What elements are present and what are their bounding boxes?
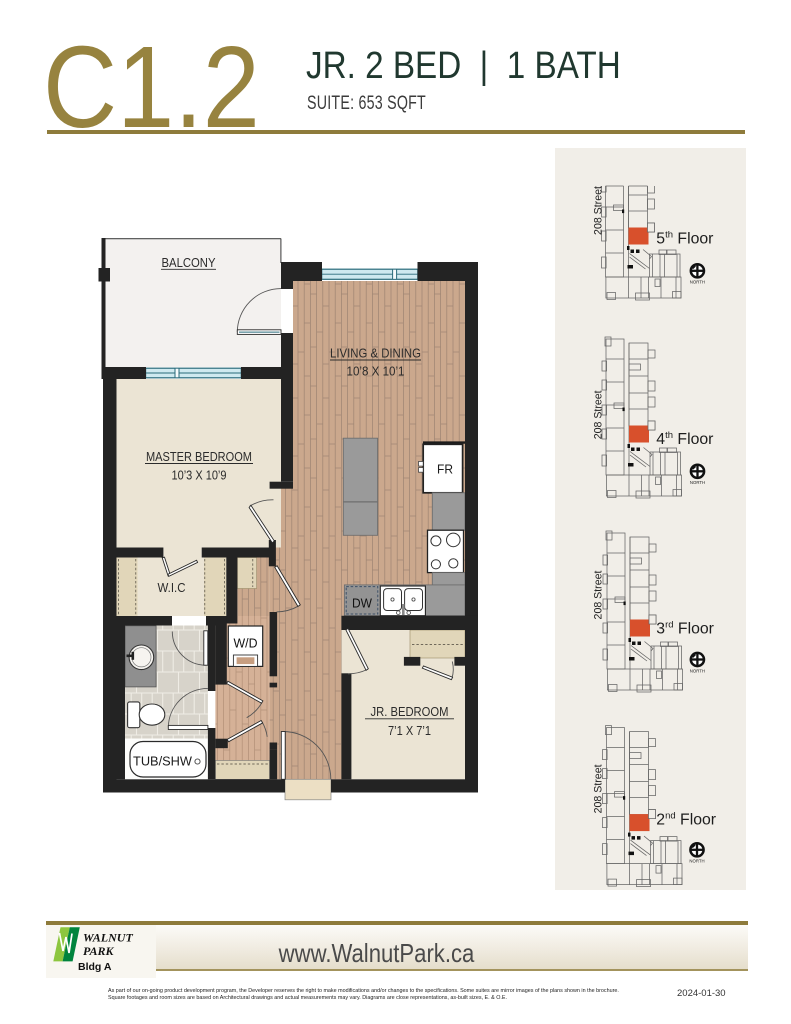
svg-text:208 Street: 208 Street bbox=[593, 764, 605, 813]
svg-text:DW: DW bbox=[352, 596, 373, 611]
svg-text:FR: FR bbox=[437, 463, 453, 477]
svg-text:10’3 X 10’9: 10’3 X 10’9 bbox=[172, 468, 227, 483]
svg-text:5th Floor: 5th Floor bbox=[656, 229, 713, 247]
svg-text:TUB/SHW: TUB/SHW bbox=[133, 754, 193, 769]
svg-text:208 Street: 208 Street bbox=[593, 390, 605, 439]
svg-text:7’1 X 7’1: 7’1 X 7’1 bbox=[388, 723, 431, 738]
svg-text:208 Street: 208 Street bbox=[593, 571, 605, 620]
svg-text:WALNUT: WALNUT bbox=[83, 930, 133, 944]
svg-text:W/D: W/D bbox=[234, 637, 258, 651]
svg-text:BALCONY: BALCONY bbox=[162, 256, 217, 270]
svg-text:2nd Floor: 2nd Floor bbox=[656, 811, 716, 829]
svg-text:Bldg A: Bldg A bbox=[78, 961, 112, 973]
svg-text:W.I.C: W.I.C bbox=[158, 581, 186, 595]
svg-text:MASTER BEDROOM: MASTER BEDROOM bbox=[146, 449, 252, 464]
svg-text:3rd Floor: 3rd Floor bbox=[656, 619, 714, 637]
svg-text:208 Street: 208 Street bbox=[593, 186, 605, 235]
svg-text:4th Floor: 4th Floor bbox=[656, 430, 713, 448]
svg-text:LIVING & DINING: LIVING & DINING bbox=[330, 346, 421, 361]
svg-text:JR. BEDROOM: JR. BEDROOM bbox=[371, 704, 449, 719]
svg-text:10’8 X 10’1: 10’8 X 10’1 bbox=[347, 364, 405, 379]
svg-text:PARK: PARK bbox=[83, 944, 114, 958]
